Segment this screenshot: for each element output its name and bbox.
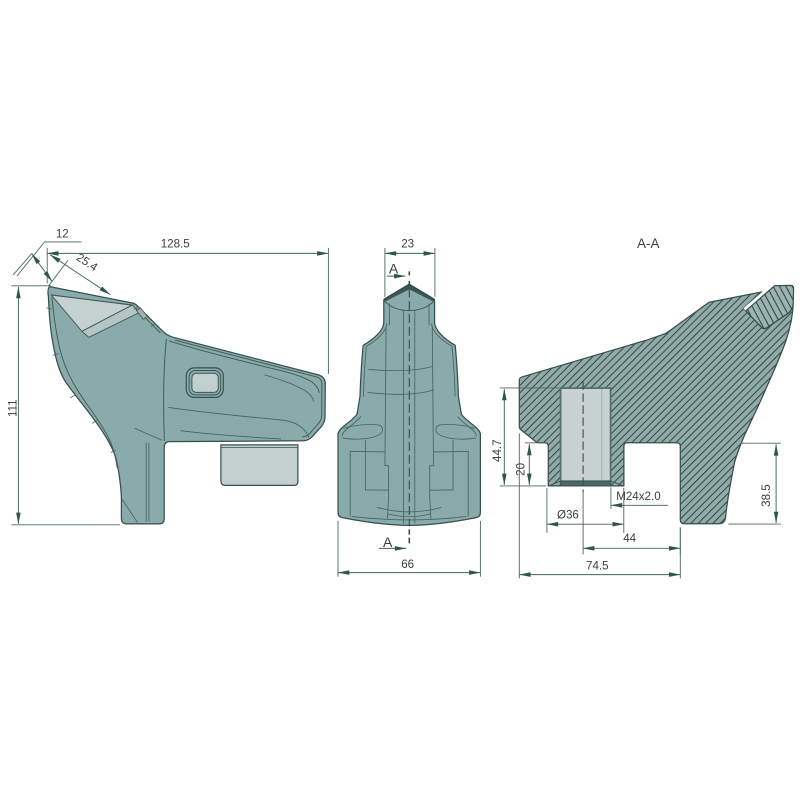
svg-text:38.5: 38.5 (760, 484, 773, 507)
svg-text:74.5: 74.5 (586, 559, 609, 572)
svg-text:A-A: A-A (637, 236, 660, 251)
svg-text:128.5: 128.5 (161, 237, 190, 250)
svg-text:Ø36: Ø36 (557, 509, 579, 522)
svg-text:44: 44 (623, 532, 636, 545)
svg-text:66: 66 (401, 558, 414, 571)
svg-text:111: 111 (6, 399, 19, 417)
svg-text:A: A (389, 260, 399, 276)
svg-text:20: 20 (515, 463, 528, 476)
svg-text:M24x2.0: M24x2.0 (616, 490, 660, 503)
svg-text:44.7: 44.7 (491, 439, 504, 462)
svg-text:23: 23 (401, 237, 414, 250)
svg-text:A: A (383, 534, 393, 550)
svg-text:12: 12 (56, 228, 69, 241)
